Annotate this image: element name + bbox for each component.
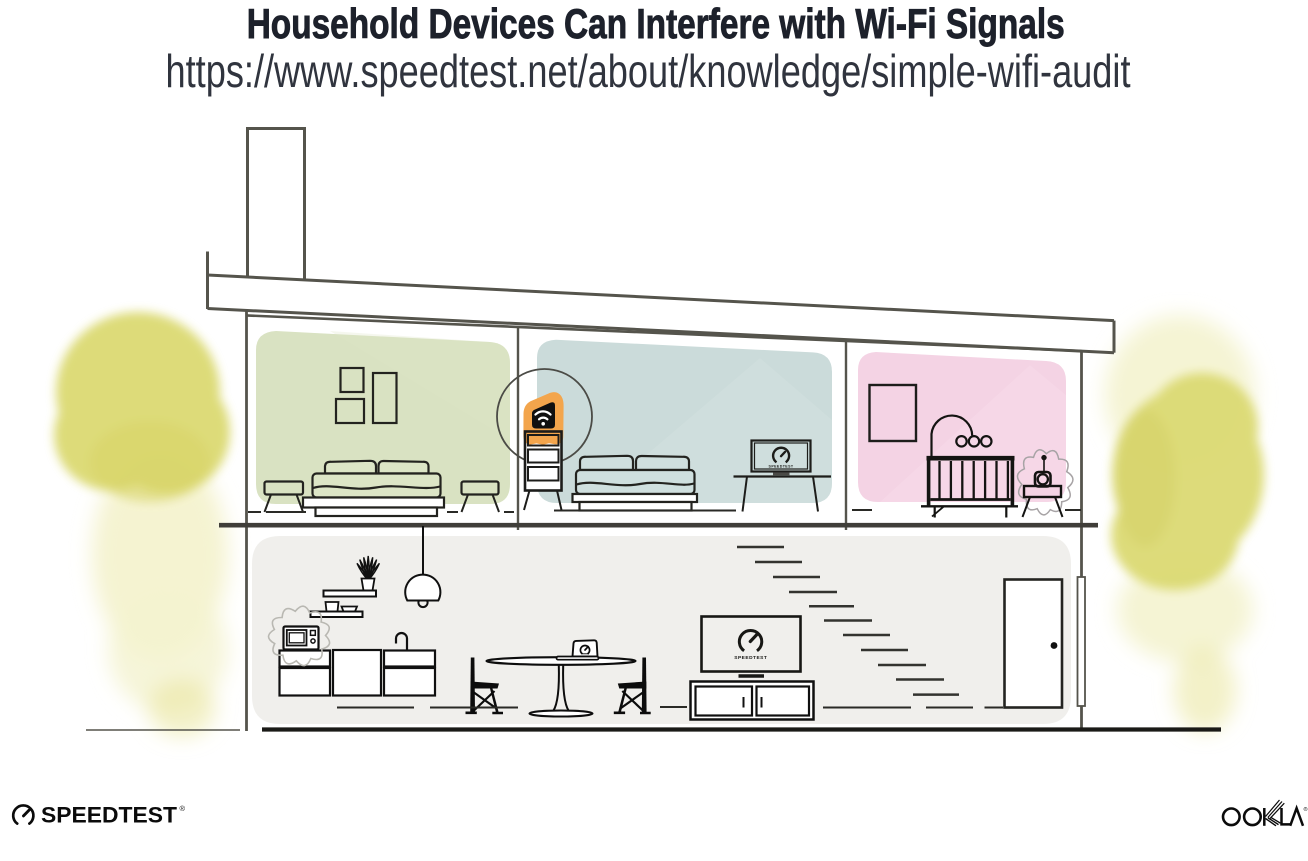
- svg-text:SPEEDTEST: SPEEDTEST: [734, 655, 767, 661]
- svg-text:https://www.speedtest.net/abou: https://www.speedtest.net/about/knowledg…: [166, 45, 1131, 97]
- svg-text:®: ®: [180, 804, 186, 813]
- svg-text:SPEEDTEST: SPEEDTEST: [769, 465, 794, 469]
- svg-text:Household Devices Can Interfer: Household Devices Can Interfere with Wi-…: [247, 0, 1065, 47]
- svg-text:®: ®: [1304, 806, 1308, 813]
- svg-text:SPEEDTEST: SPEEDTEST: [41, 803, 178, 828]
